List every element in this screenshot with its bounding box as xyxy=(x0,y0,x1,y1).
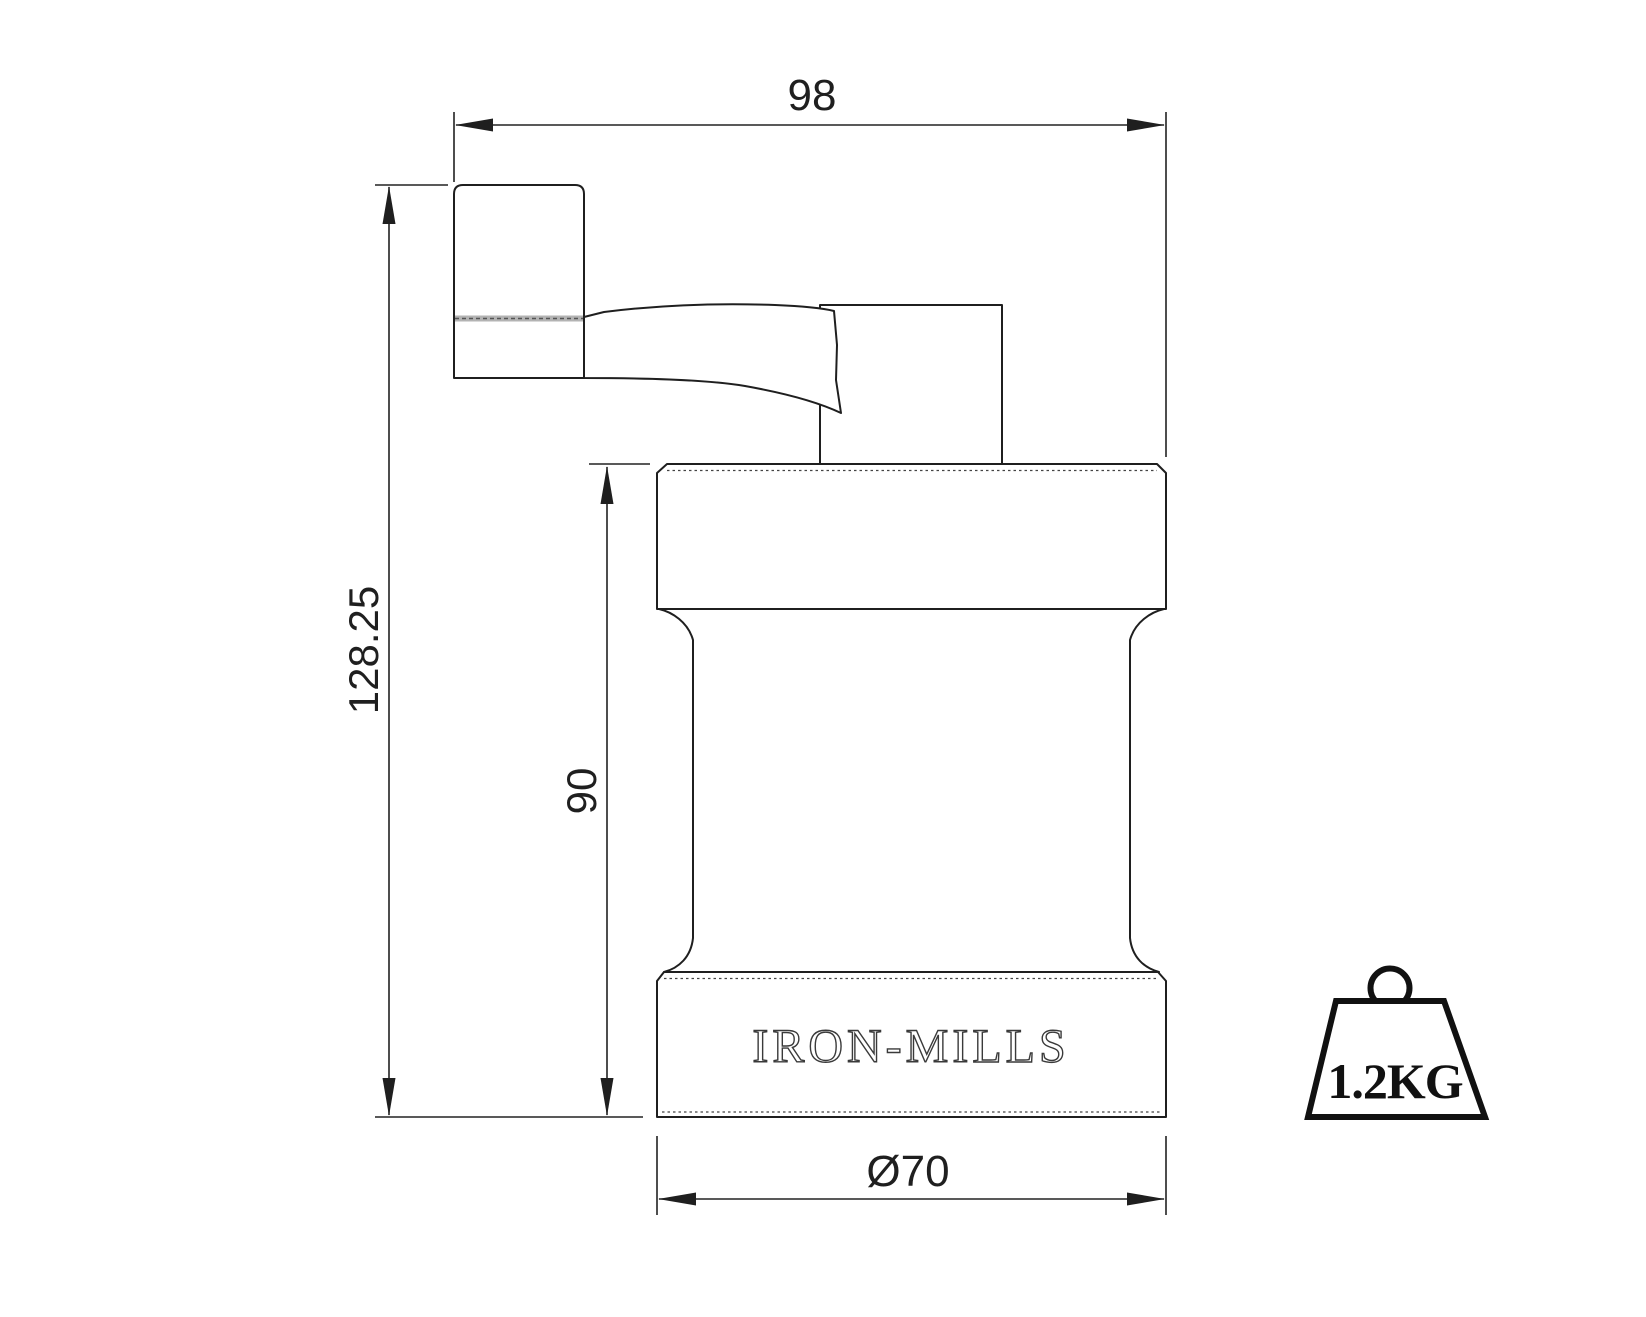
body-right-profile xyxy=(1130,609,1164,972)
crank-shaft-fill xyxy=(820,305,1002,464)
arrowhead-down-icon xyxy=(601,1078,614,1116)
dimension-label-diameter: Ø70 xyxy=(866,1147,949,1196)
brand-engraving: IRON-MILLS xyxy=(752,1020,1069,1073)
dimension-label-width: 98 xyxy=(788,71,837,120)
body-left-profile xyxy=(659,609,693,972)
dimension-body-height: 90 xyxy=(558,464,650,1116)
weight-label: 1.2KG xyxy=(1327,1053,1462,1109)
arrowhead-down-icon xyxy=(383,1078,396,1116)
arrowhead-left-icon xyxy=(455,119,493,132)
arrowhead-up-icon xyxy=(601,466,614,504)
dimension-base-diameter: Ø70 xyxy=(657,1136,1166,1215)
weight-badge: 1.2KG xyxy=(1308,969,1485,1118)
crank-arm xyxy=(584,304,841,413)
arrowhead-right-icon xyxy=(1127,119,1165,132)
dimension-label-height: 128.25 xyxy=(340,586,387,714)
crank-handle xyxy=(454,185,841,413)
mill-body: IRON-MILLS xyxy=(657,305,1166,1117)
dimension-label-body-height: 90 xyxy=(558,768,605,815)
arrowhead-left-icon xyxy=(658,1193,696,1206)
handle-knob xyxy=(454,185,584,378)
arrowhead-right-icon xyxy=(1127,1193,1165,1206)
technical-drawing-page: IRON-MILLS 98 128.25 90 xyxy=(0,0,1646,1317)
cap-outline xyxy=(657,464,1166,609)
mill-dimension-drawing: IRON-MILLS 98 128.25 90 xyxy=(0,0,1646,1317)
arrowhead-up-icon xyxy=(383,186,396,224)
